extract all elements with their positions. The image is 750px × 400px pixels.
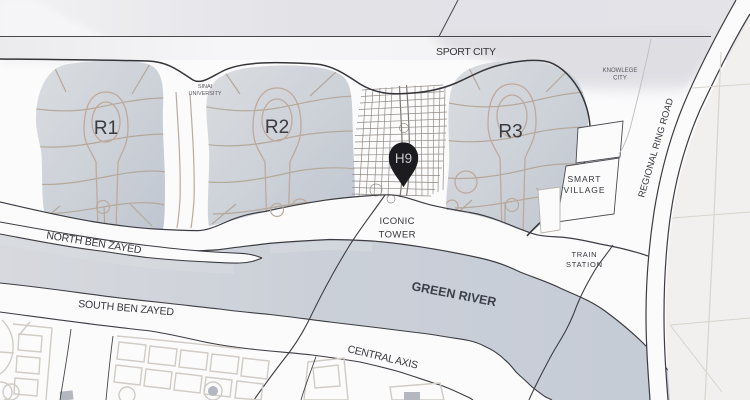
svg-text:TRAIN: TRAIN <box>572 250 597 259</box>
svg-text:CITY: CITY <box>613 76 627 82</box>
svg-text:SINAI: SINAI <box>198 84 213 90</box>
svg-text:UNIVERSITY: UNIVERSITY <box>188 91 221 97</box>
svg-text:VILLAGE: VILLAGE <box>564 185 605 195</box>
svg-text:SMART: SMART <box>568 174 601 184</box>
svg-text:H9: H9 <box>395 151 412 166</box>
svg-text:SPORT CITY: SPORT CITY <box>436 46 496 58</box>
svg-text:ICONIC: ICONIC <box>380 216 415 227</box>
svg-text:STATION: STATION <box>566 260 602 269</box>
svg-text:R1: R1 <box>94 118 118 139</box>
svg-text:TOWER: TOWER <box>379 230 416 241</box>
svg-text:R3: R3 <box>498 122 522 143</box>
svg-text:KNOWLEGE: KNOWLEGE <box>603 68 638 74</box>
svg-text:R2: R2 <box>265 117 289 138</box>
